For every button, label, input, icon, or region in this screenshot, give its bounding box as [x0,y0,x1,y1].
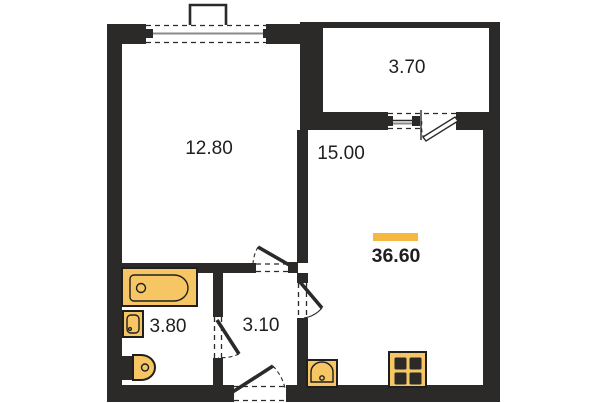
living-room-area-label: 15.00 [317,143,365,164]
wall-left-outer [107,24,122,402]
window-jamb-left [144,29,153,38]
balcony-window-door [386,110,458,141]
doorD-swing-arc [273,366,285,388]
washbasin-icon [123,311,143,337]
walls [107,22,500,402]
wall-right-outer [483,112,500,402]
balcony-window-jamb-left [386,116,393,126]
floor-plan: 12.80 3.70 15.00 3.80 3.10 36.60 [0,0,605,403]
bathtub-icon [122,268,197,306]
bedroom-window [144,5,272,43]
hallway-area-label: 3.10 [243,315,280,336]
floor-plan-canvas: 12.80 3.70 15.00 3.80 3.10 36.60 [0,0,605,403]
doorB-leaf [217,320,239,354]
doorC-leaf [300,282,322,308]
wall-balcony-bottom-left [300,112,388,130]
balcony-area-label: 3.70 [389,57,426,78]
balcony-door-leaf [423,117,458,141]
balcony-window-jamb-mid [412,116,420,126]
stove-icon [389,352,426,387]
doorD-leaf [231,366,273,393]
wall-bottom-left [107,385,234,402]
total-area-label: 36.60 [372,245,421,267]
wall-divider-bedroom-living [297,130,308,263]
wall-top-left [107,24,146,44]
total-area-highlight-bar [373,233,418,241]
vent-duct-icon [190,5,226,25]
toilet-tank [122,356,133,380]
wall-hallway-right-top [297,273,308,283]
window-jamb-right [263,29,272,38]
door-to-living-room [299,282,323,318]
kitchen-sink-icon [307,360,337,387]
door-to-bathroom [215,317,240,358]
wall-bath-hall-top [213,273,223,317]
toilet-icon [122,355,155,380]
entry-door [231,366,286,401]
doorA-leaf [258,247,291,266]
door-to-bedroom [253,247,291,272]
bathroom-area-label: 3.80 [150,316,187,337]
doorA-swing-arc [253,247,258,264]
wall-bath-hall-bottom [213,358,223,385]
bedroom-area-label: 12.80 [185,138,233,159]
wall-balcony-top [323,22,500,28]
